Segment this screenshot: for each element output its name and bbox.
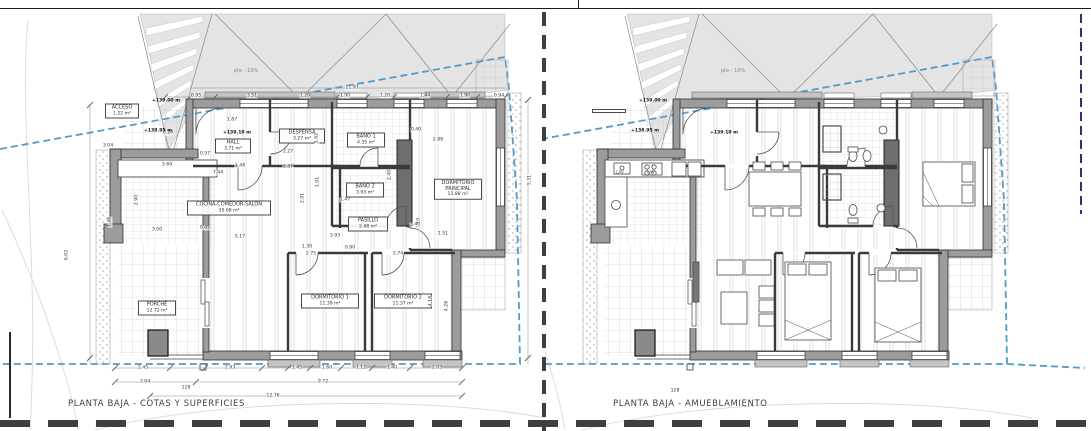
dimension-label: 1.20 xyxy=(379,94,390,99)
dimension-label: 2.93 xyxy=(224,366,235,371)
dimension-label: 0.95 xyxy=(190,94,201,99)
dimension-label: 5.17 xyxy=(234,235,245,240)
dimension-label: 7.44 xyxy=(212,171,223,176)
floor-plan-amueblamiento: 128+139.00 m+138.95 m+139.10 mLAVLAVpte … xyxy=(545,0,1091,431)
room-area: 3.71 m² xyxy=(218,146,248,152)
room-label: COCINA-COMEDOR-SALÓN35.68 m² xyxy=(187,201,271,216)
dimension-label: 0.45 xyxy=(199,226,210,231)
dimension-label: 2.74 xyxy=(392,252,403,257)
dimension-label: 1.44 xyxy=(419,94,430,99)
room-label: DORMITORIO 211.37 m² xyxy=(374,294,432,309)
dimension-label: 0.94 xyxy=(493,94,504,99)
level-marker: +139.00 m xyxy=(152,99,180,104)
room-area: 11.39 m² xyxy=(304,301,356,307)
slope-label: pte - 10% xyxy=(234,68,258,74)
room-name: DORMITORIO 2 xyxy=(377,296,429,302)
dimension-label: 2.03 xyxy=(431,366,442,371)
room-area: 1.22 m² xyxy=(108,111,136,117)
dimension-label: 2.88 xyxy=(432,138,443,143)
dimension-label: 2.90 xyxy=(135,194,140,205)
room-label: DORMITORIO PRINCIPAL11.88 m² xyxy=(434,179,482,200)
dimension-label: 1.47 xyxy=(339,198,350,203)
dimension-label: 4.28 xyxy=(445,300,450,311)
dimension-label: 1.51 xyxy=(437,232,448,237)
dimension-label: 0.40 xyxy=(410,128,421,133)
floor-plan-cotas-drawing xyxy=(0,0,546,431)
room-label xyxy=(592,109,626,113)
room-name: DORMITORIO 1 xyxy=(304,296,356,302)
level-marker: +138.95 m xyxy=(631,129,659,134)
level-marker: +138.95 m xyxy=(144,129,172,134)
boundary-extension xyxy=(1007,364,1085,368)
sheet-top-tick xyxy=(578,0,579,8)
room-area: 12.72 m² xyxy=(141,308,173,314)
dimension-label: 1.91 xyxy=(316,176,321,187)
dimension-label: 2.75 xyxy=(305,252,316,257)
dimension-label: 1.62 xyxy=(315,132,320,143)
sheet-left-edge-line xyxy=(9,332,11,418)
level-marker: +139.10 m xyxy=(223,131,251,136)
sheet-bottom-dashed-border xyxy=(0,420,1091,427)
dimension-label: 3.00 xyxy=(151,228,162,233)
dimension-label: 128 xyxy=(181,386,191,391)
bed-principal xyxy=(923,162,975,206)
room-label: BAÑO 14.35 m² xyxy=(347,133,385,148)
room-area: 11.88 m² xyxy=(437,192,479,198)
dimension-label: 2.37 xyxy=(282,165,293,170)
level-marker: +139.00 m xyxy=(639,99,667,104)
dimension-label: 3.51 xyxy=(246,94,257,99)
parcel-navy-dashed-line xyxy=(1080,14,1082,214)
dimension-label: 2.40 xyxy=(388,169,393,180)
room-area: 4.35 m² xyxy=(350,140,382,146)
dimension-label: 3.04 xyxy=(139,380,150,385)
room-label: PASILLO2.48 m² xyxy=(348,217,388,232)
room-label: HALL3.71 m² xyxy=(215,139,251,154)
room-area: 11.37 m² xyxy=(377,301,429,307)
dining-table xyxy=(749,162,801,216)
dimension-label: 128 xyxy=(670,389,680,394)
level-marker: +139.10 m xyxy=(710,131,738,136)
dimension-label: 0.57 xyxy=(199,152,210,157)
dimension-label: 0.90 xyxy=(344,246,355,251)
dimension-label: 1.12 xyxy=(355,366,366,371)
dimension-label: 12.76 xyxy=(266,394,280,399)
sheet-top-border xyxy=(0,8,1091,9)
room-area: 35.68 m² xyxy=(190,208,268,214)
dimension-label: 5.31 xyxy=(528,174,533,185)
drawing-sheet: ACCESO1.22 m²HALL3.71 m²DESPENSA3.27 m²B… xyxy=(0,0,1091,431)
plan-divider-dashed xyxy=(542,12,546,431)
room-name: ACCESO xyxy=(108,106,136,112)
dimension-label: 1.60 xyxy=(321,366,332,371)
room-label: ACCESO1.22 m² xyxy=(105,104,139,119)
room-label: PORCHE12.72 m² xyxy=(138,301,176,316)
dimension-label: 1.87 xyxy=(226,118,237,123)
room-area: 3.93 m² xyxy=(349,190,381,196)
plan-title-amueblamiento: PLANTA BAJA - AMUEBLAMIENTO xyxy=(613,399,768,409)
dimension-label: 3.40 xyxy=(409,223,420,228)
dimension-label: 1.90 xyxy=(459,94,470,99)
appliance-label: LAV xyxy=(647,170,655,175)
dimension-label: 1.30 xyxy=(301,245,312,250)
dimension-label: 2.27 xyxy=(282,150,293,155)
dimension-label: 6.02 xyxy=(65,249,70,260)
room-label: DORMITORIO 111.39 m² xyxy=(301,294,359,309)
room-area: 2.48 m² xyxy=(351,224,385,230)
dimension-label: 1.48 xyxy=(234,164,245,169)
bed-dormitorio-2 xyxy=(875,268,921,342)
dimension-label: 1.45 xyxy=(291,366,302,371)
dimension-label: 9.72 xyxy=(317,380,328,385)
dimension-label: 4.18 xyxy=(429,295,434,306)
dimension-label: 2.45 xyxy=(137,366,148,371)
room-name: COCINA-COMEDOR-SALÓN xyxy=(190,203,268,209)
appliance-label: LAV xyxy=(616,170,624,175)
dimension-label: 2.91 xyxy=(301,192,306,203)
room-label: BAÑO 23.93 m² xyxy=(346,183,384,198)
dimension-label: 3.60 xyxy=(161,163,172,168)
dimension-label: 3.93 xyxy=(329,234,340,239)
dimension-label: 1.90 xyxy=(339,94,350,99)
slope-label: pte - 10% xyxy=(721,68,745,74)
dimension-label: 1.46 xyxy=(108,216,113,227)
dimension-label: 1.40 xyxy=(386,366,397,371)
dimension-label: 3.04 xyxy=(102,144,113,149)
floor-plan-amueblamiento-drawing xyxy=(545,0,1091,431)
room-name: DORMITORIO PRINCIPAL xyxy=(437,181,479,192)
plan-title-cotas: PLANTA BAJA - COTAS Y SUPERFICIES xyxy=(68,399,245,409)
dimension-label: 1.20 xyxy=(299,94,310,99)
bed-dormitorio-1 xyxy=(785,262,831,340)
floor-plan-cotas: ACCESO1.22 m²HALL3.71 m²DESPENSA3.27 m²B… xyxy=(0,0,546,431)
dimension-label: 11.93 xyxy=(345,86,359,91)
